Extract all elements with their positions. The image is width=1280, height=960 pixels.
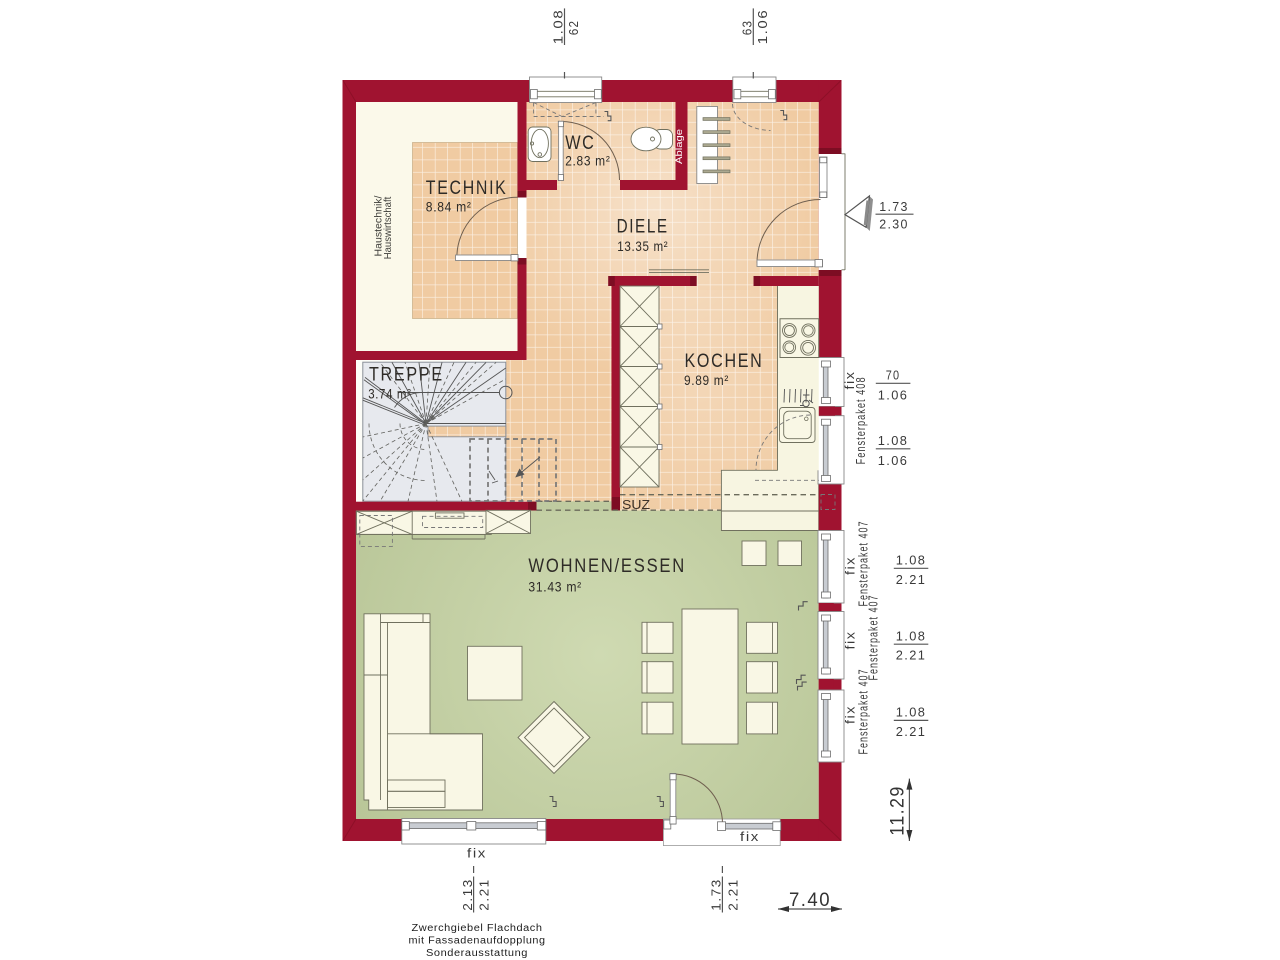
svg-text:7.40: 7.40 xyxy=(789,890,831,911)
svg-text:1.06: 1.06 xyxy=(878,388,909,403)
svg-text:fix: fix xyxy=(740,829,760,844)
svg-text:DIELE: DIELE xyxy=(617,216,669,237)
svg-text:2.21: 2.21 xyxy=(896,648,927,663)
svg-text:63: 63 xyxy=(739,20,754,36)
svg-text:SUZ: SUZ xyxy=(622,497,650,512)
svg-text:2.21: 2.21 xyxy=(896,724,927,739)
svg-text:1.08: 1.08 xyxy=(551,9,566,45)
svg-text:2.21: 2.21 xyxy=(896,572,927,587)
svg-text:1.06: 1.06 xyxy=(878,453,909,468)
svg-text:Fensterpaket 407: Fensterpaket 407 xyxy=(866,595,881,681)
svg-text:13.35 m²: 13.35 m² xyxy=(617,238,668,254)
svg-text:2.21: 2.21 xyxy=(477,878,492,911)
svg-text:1.08: 1.08 xyxy=(896,705,927,720)
svg-text:11.29: 11.29 xyxy=(888,785,909,836)
svg-text:KOCHEN: KOCHEN xyxy=(685,351,764,372)
svg-text:2.83 m²: 2.83 m² xyxy=(565,152,610,168)
svg-text:1.08: 1.08 xyxy=(896,553,927,568)
svg-text:2.30: 2.30 xyxy=(879,217,909,232)
svg-text:2.13: 2.13 xyxy=(460,878,475,911)
svg-text:1.06: 1.06 xyxy=(755,9,770,45)
svg-text:3.74 m²: 3.74 m² xyxy=(368,385,411,401)
svg-text:mit Fassadenaufdopplung: mit Fassadenaufdopplung xyxy=(409,936,546,947)
svg-text:fix: fix xyxy=(467,846,487,861)
svg-text:fix: fix xyxy=(843,631,858,650)
svg-text:Hauswirtschaft: Hauswirtschaft xyxy=(383,196,394,259)
svg-text:WOHNEN/ESSEN: WOHNEN/ESSEN xyxy=(528,556,686,577)
svg-text:31.43 m²: 31.43 m² xyxy=(528,579,582,595)
svg-text:2.21: 2.21 xyxy=(725,878,740,911)
svg-text:WC: WC xyxy=(565,133,595,154)
svg-text:8.84 m²: 8.84 m² xyxy=(426,198,472,214)
svg-text:Fensterpaket 407: Fensterpaket 407 xyxy=(855,521,870,607)
svg-text:Fensterpaket 408: Fensterpaket 408 xyxy=(853,376,868,464)
svg-text:1.08: 1.08 xyxy=(896,629,927,644)
svg-text:Zwerchgiebel Flachdach: Zwerchgiebel Flachdach xyxy=(412,923,543,934)
svg-text:Ablage: Ablage xyxy=(674,129,684,164)
svg-text:9.89 m²: 9.89 m² xyxy=(684,372,729,388)
svg-text:62: 62 xyxy=(566,20,581,36)
svg-text:Fensterpaket 407: Fensterpaket 407 xyxy=(855,669,870,755)
svg-text:1.73: 1.73 xyxy=(879,199,909,214)
svg-text:70: 70 xyxy=(886,368,901,383)
svg-text:1.08: 1.08 xyxy=(878,433,909,448)
svg-text:1.73: 1.73 xyxy=(709,878,724,911)
svg-text:TREPPE: TREPPE xyxy=(369,364,444,385)
svg-text:TECHNIK: TECHNIK xyxy=(426,178,508,199)
svg-text:Sonderausstattung: Sonderausstattung xyxy=(426,948,528,959)
